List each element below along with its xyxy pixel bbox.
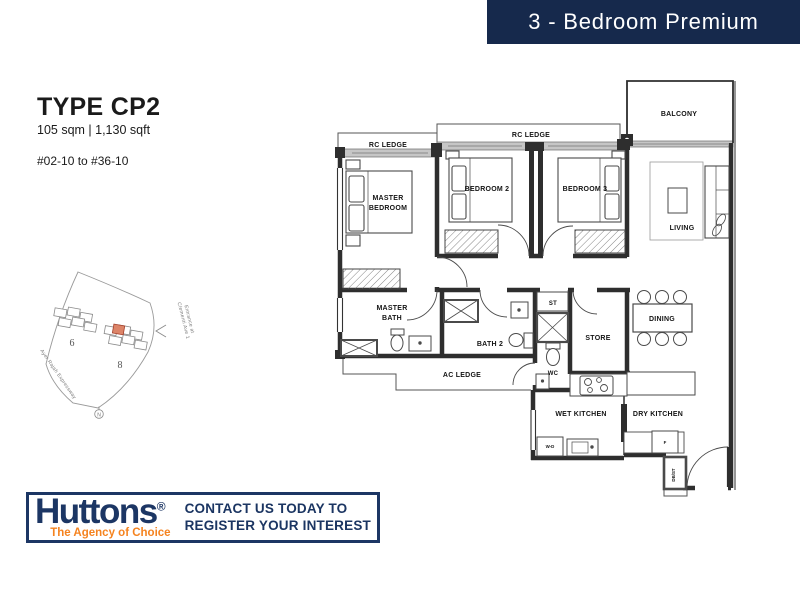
room-label-master-bedroom-2: BEDROOM: [369, 205, 407, 212]
entrance-arrow-icon: [156, 325, 166, 337]
cta-line1: CONTACT US TODAY TO: [185, 501, 371, 518]
block-8-label: 8: [118, 360, 123, 371]
agency-contact-box: Huttons® The Agency of Choice CONTACT US…: [26, 492, 380, 543]
room-label-dining: DINING: [649, 316, 675, 323]
room-label-dry-kitchen: DRY KITCHEN: [633, 411, 683, 418]
room-label-ac-ledge: AC LEDGE: [443, 372, 481, 379]
room-label-rc-ledge-top: RC LEDGE: [512, 132, 550, 139]
label-db-st: DB/ST: [671, 468, 676, 481]
room-label-master-bath-1: MASTER: [376, 305, 407, 312]
road-label: Ayer Rajah Expressway: [38, 348, 77, 400]
block-6-label: 6: [70, 338, 75, 349]
room-label-bath2: BATH 2: [477, 341, 503, 348]
room-label-master-bedroom-1: MASTER: [372, 195, 403, 202]
building-cluster-8: [103, 323, 150, 350]
cta-line2: REGISTER YOUR INTEREST: [185, 518, 371, 535]
room-label-bedroom2: BEDROOM 2: [465, 186, 510, 193]
room-label-rc-ledge-left: RC LEDGE: [369, 142, 407, 149]
header-banner: 3 - Bedroom Premium: [487, 0, 800, 44]
bed-master: [346, 160, 412, 246]
brochure-page: 3 - Bedroom Premium TYPE CP2 105 sqm | 1…: [0, 0, 800, 600]
wardrobes: [343, 230, 625, 289]
unit-area-label: 105 sqm | 1,130 sqft: [37, 123, 160, 137]
registered-mark: ®: [157, 500, 166, 514]
highlighted-unit: [112, 324, 124, 335]
room-label-balcony: BALCONY: [661, 111, 697, 118]
master-bath-fixtures: [341, 329, 431, 356]
room-label-wc: WC: [548, 371, 559, 377]
entrance-label: Entrance at Clementi Ave 1: [176, 300, 197, 340]
huttons-logo: Huttons® The Agency of Choice: [35, 496, 173, 539]
page-title: 3 - Bedroom Premium: [528, 9, 758, 35]
room-label-store: STORE: [585, 335, 610, 342]
svg-text:N: N: [97, 412, 101, 418]
label-washer-dryer: W-D: [546, 444, 555, 449]
label-fridge: F: [664, 440, 667, 445]
sofa: [705, 166, 729, 238]
building-cluster-6: [52, 305, 99, 332]
contact-cta: CONTACT US TODAY TO REGISTER YOUR INTERE…: [185, 501, 371, 534]
huttons-tagline: The Agency of Choice: [35, 527, 173, 539]
room-label-living: LIVING: [670, 225, 695, 232]
north-indicator-icon: N: [95, 407, 104, 419]
floor-plan: BALCONY RC LEDGE RC LEDGE MASTER BEDROOM…: [320, 60, 760, 505]
unit-stacks-label: #02-10 to #36-10: [37, 154, 160, 168]
room-label-bedroom3: BEDROOM 3: [563, 186, 608, 193]
site-map: 6 8 Ayer Rajah Expressway Entrance at Cl…: [20, 262, 210, 432]
unit-type-label: TYPE CP2: [37, 95, 160, 120]
unit-info: TYPE CP2 105 sqm | 1,130 sqft #02-10 to …: [37, 95, 160, 168]
site-boundary: [46, 272, 154, 408]
room-label-st: ST: [549, 301, 557, 307]
room-label-master-bath-2: BATH: [382, 315, 402, 322]
room-label-wet-kitchen: WET KITCHEN: [555, 411, 606, 418]
huttons-wordmark: Huttons: [35, 492, 157, 531]
